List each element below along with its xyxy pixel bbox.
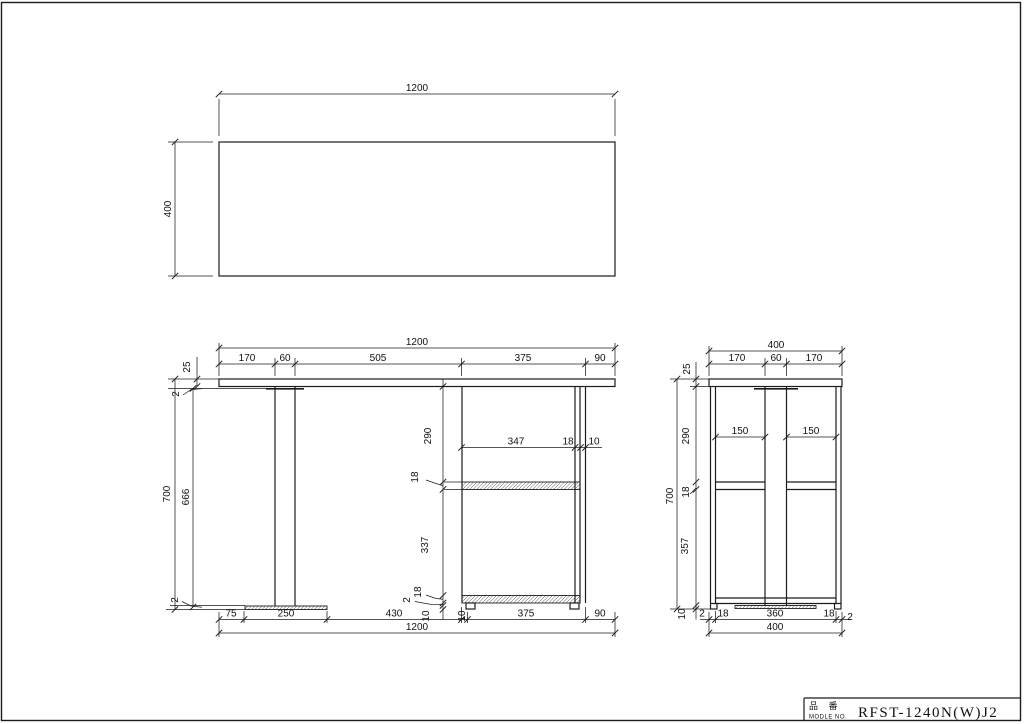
dim-side-top-170b: 170 — [806, 353, 823, 364]
cabinet-walls-front — [462, 387, 586, 604]
dim-plan-width: 1200 — [406, 83, 429, 94]
cabinet-foot-left-front — [466, 603, 475, 609]
dim-front-bottom-total: 1200 — [406, 622, 429, 633]
top-view-dimension-lines — [168, 94, 615, 276]
dim-front-bottom-250: 250 — [278, 609, 295, 620]
cabinet-side-panels — [711, 387, 842, 604]
dim-side-bottom-360: 360 — [767, 609, 784, 620]
dim-front-shelf-10: 10 — [588, 437, 600, 448]
title-block: 品 番 MODLE NO. RFST-1240N(W)J2 — [804, 698, 1021, 721]
dim-front-top-edge: 2 — [171, 391, 182, 397]
bottom-panel-side — [716, 598, 837, 604]
cabinet-foot-right-side — [835, 604, 842, 610]
front-dimension-lines — [166, 343, 615, 637]
tabletop-side — [709, 379, 842, 387]
dim-front-top-505: 505 — [370, 353, 387, 364]
dim-side-vchain-357: 357 — [680, 537, 691, 554]
tabletop-front — [219, 379, 615, 387]
dim-side-vchain-18: 18 — [681, 486, 692, 498]
dim-side-vchain-10: 10 — [677, 608, 688, 620]
drawing-sheet: 1200 400 — [0, 0, 1024, 724]
title-block-item-label-en: MODLE NO. — [809, 715, 847, 721]
dim-side-bottom-18a: 18 — [717, 609, 729, 620]
dim-side-top-60: 60 — [770, 353, 782, 364]
dim-front-vchain-290: 290 — [423, 427, 434, 444]
dim-side-vchain-290: 290 — [681, 427, 692, 444]
side-dim-ticks — [674, 348, 845, 636]
cabinet-bottom-panel-front — [462, 596, 580, 604]
title-block-item-label-jp: 品 番 — [809, 700, 842, 711]
dim-front-top-60: 60 — [279, 353, 291, 364]
dim-front-vchain-2: 2 — [402, 597, 413, 603]
dim-side-bottom-total: 400 — [767, 622, 784, 633]
dim-front-vchain-18a: 18 — [410, 471, 421, 483]
dim-front-top-170: 170 — [239, 353, 256, 364]
cad-drawing: 1200 400 — [0, 0, 1024, 724]
top-view: 1200 400 — [163, 83, 618, 279]
dim-front-vchain-10: 10 — [421, 610, 432, 622]
dim-side-bottom-2a: 2 — [699, 609, 705, 620]
dim-side-opening-right: 150 — [803, 426, 820, 437]
dim-front-top-90: 90 — [594, 353, 606, 364]
dim-front-bottom-10: 10 — [457, 610, 468, 622]
dim-front-vchain-18b: 18 — [413, 586, 424, 598]
pedestal-leg-front — [275, 387, 295, 607]
dim-front-thickness: 25 — [182, 361, 193, 373]
dim-front-bottom-430: 430 — [386, 609, 403, 620]
dim-front-bottom-90: 90 — [594, 609, 606, 620]
side-dim-labels: 400 170 60 170 25 290 18 357 10 700 150 … — [665, 340, 853, 633]
dim-side-thickness: 25 — [682, 363, 693, 375]
dim-front-shelf-347: 347 — [508, 437, 525, 448]
pedestal-leg-side — [765, 387, 787, 606]
title-block-model-no: RFST-1240N(W)J2 — [858, 705, 998, 721]
dim-plan-depth: 400 — [163, 200, 174, 217]
dim-side-bottom-2b: 2 — [847, 612, 853, 623]
cabinet-shelf-front — [462, 482, 580, 490]
dim-front-top-total: 1200 — [406, 337, 429, 348]
tabletop-plan-outline — [219, 142, 615, 276]
front-object-lines — [219, 379, 615, 610]
dim-front-bottom-75: 75 — [225, 609, 237, 620]
dim-front-height-inner: 666 — [181, 488, 192, 505]
dim-front-bottom-375: 375 — [518, 609, 535, 620]
dim-front-height-total: 700 — [162, 485, 173, 502]
dim-side-bottom-18b: 18 — [823, 609, 835, 620]
side-object-lines — [709, 379, 842, 609]
dim-front-top-375: 375 — [515, 353, 532, 364]
cabinet-foot-right-front — [570, 603, 579, 609]
shelf-side — [716, 482, 837, 490]
dim-side-top-total: 400 — [768, 340, 785, 351]
side-elevation: 400 170 60 170 25 290 18 357 10 700 150 … — [665, 340, 853, 637]
page-border — [2, 3, 1021, 721]
cabinet-foot-left-side — [711, 604, 718, 610]
dim-side-height-total: 700 — [665, 487, 676, 504]
dim-front-vchain-337: 337 — [420, 536, 431, 553]
dim-side-top-170a: 170 — [729, 353, 746, 364]
dim-front-shelf-18: 18 — [562, 437, 574, 448]
dim-front-bottom-edge: 2 — [170, 597, 181, 603]
front-elevation: 1200 170 60 505 375 90 25 2 700 666 2 29… — [162, 337, 618, 637]
dim-side-opening-left: 150 — [732, 426, 749, 437]
